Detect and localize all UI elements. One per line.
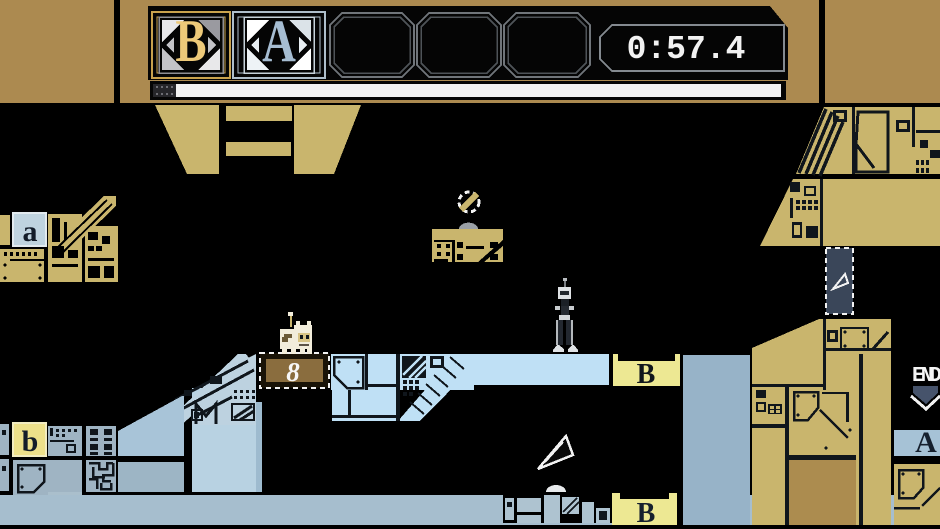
svg-text:END: END: [912, 365, 940, 388]
svg-text:B: B: [637, 359, 656, 390]
svg-text:A: A: [262, 7, 296, 74]
svg-text:B: B: [175, 7, 206, 74]
svg-text:B: B: [637, 498, 656, 529]
svg-text:A: A: [915, 426, 937, 459]
svg-text:8: 8: [286, 357, 300, 387]
svg-text:a: a: [23, 215, 38, 248]
svg-text:b: b: [22, 425, 39, 458]
svg-text:0:57.4: 0:57.4: [627, 31, 746, 68]
